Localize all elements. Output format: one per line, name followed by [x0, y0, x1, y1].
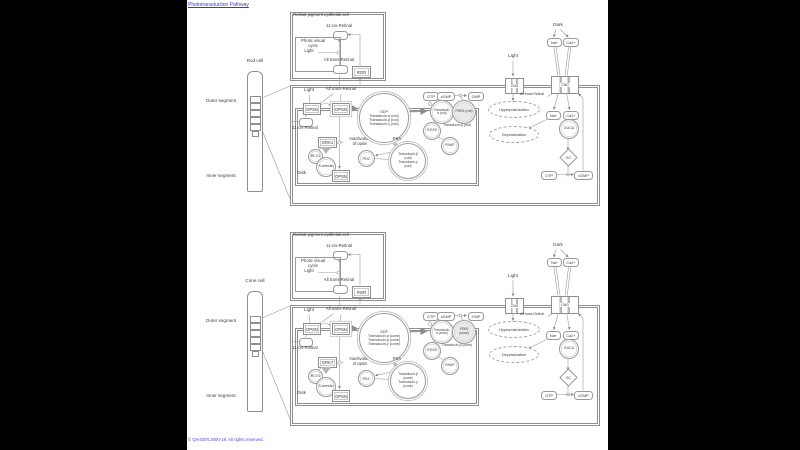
disk-lamella [250, 337, 261, 344]
transducin-betagamma-complex[interactable]: Transducin-β (cone) Transducin-γ (cone) [390, 363, 426, 399]
outer-segment-label: Outer segment [201, 98, 241, 103]
outer-segment-label: Outer segment [201, 318, 241, 323]
rpe-cell-title: Retinal pigment epithelial cell [293, 233, 365, 238]
alltrans-retinal-label: All trans-Retinal [319, 307, 363, 312]
na-ion-extracellular: Na+ [547, 38, 562, 47]
gmp-metabolite: GMP [468, 92, 484, 101]
connecting-cilium [252, 351, 259, 357]
light-label: Light [299, 87, 319, 92]
na-ion-intracellular: Na+ [546, 331, 561, 340]
dark-label: Dark [548, 242, 568, 247]
disk-lamella [250, 344, 261, 351]
gene-box-opsn-phosphorylated[interactable]: OPSN [332, 170, 350, 182]
transducin-gamma-label: Transducin-γ (rod) [367, 122, 401, 126]
panel-cone: Cone cell Outer segment Inner segment Re… [187, 228, 607, 428]
gc-label: GC [566, 375, 571, 379]
copyright-text: © QIAGEN 2000-19. All rights reserved. [188, 437, 264, 442]
rod-panel-slot: Rod cell Outer segment Inner segment Ret… [187, 8, 607, 208]
gene-box-opsn[interactable]: OPSN [303, 323, 321, 335]
transducin-heterotrimer-complex[interactable]: GDP Transducin-α (cone) Transducin-β (co… [359, 313, 409, 363]
rpe-11cis-retinal-label: 11-cis-Retinal [315, 244, 363, 249]
depolarization-burst: Depolarization [489, 126, 539, 143]
gc-label: GC [566, 155, 571, 159]
protein-pde6[interactable]: PDE6 (cone) [452, 320, 476, 344]
cgmp-metabolite-2: cGMP [574, 391, 593, 400]
pka-label: PKA [388, 357, 406, 362]
ca-ion-extracellular: Ca2+ [563, 258, 579, 267]
cng-label: CNG [560, 83, 570, 87]
inner-segment-label: Inner segment [201, 393, 241, 398]
gene-box-opsn-activated[interactable]: OPSN [332, 103, 350, 115]
rpe-alltrans-retinal-label: All trans-Retinal [313, 58, 365, 63]
transducin-alpha-active-label: Transducin-α (rod) [433, 109, 451, 116]
light-label: Light [299, 307, 319, 312]
protein-transducin-alpha-active[interactable]: Transducin-α (cone) [430, 320, 454, 344]
transducin-alpha-active-label: Transducin-α (cone) [433, 329, 451, 336]
protein-transducin-alpha-active[interactable]: Transducin-α (rod) [430, 100, 454, 124]
alltrans-retinal-channel-label: All trans-Retinal [514, 93, 550, 97]
protein-r9ap[interactable]: R9AP [441, 137, 459, 155]
gene-box-opsn[interactable]: OPSN [303, 103, 321, 115]
protein-pdc[interactable]: PDC [358, 370, 375, 387]
disk-label: Disk [297, 170, 317, 175]
rpe-alltrans-retinal-metabolite [333, 285, 348, 294]
protein-r9ap[interactable]: R9AP [441, 357, 459, 375]
transducin-heterotrimer-complex[interactable]: GDP Transducin-α (rod) Transducin-β (rod… [359, 93, 409, 143]
disk-lamella [250, 330, 261, 337]
cone-panel-slot: Cone cell Outer segment Inner segment Re… [187, 228, 607, 428]
gtp-metabolite-2: GTP [541, 171, 557, 180]
rpe-alltrans-retinal-metabolite [333, 65, 348, 74]
cng-channel-right[interactable]: CNG [551, 76, 579, 94]
transducin-gamma-label: Transducin-γ (cone) [395, 381, 421, 389]
11cis-retinal-label: 11-cis-Retinal [286, 346, 324, 351]
protein-guca[interactable]: GUCA [559, 119, 579, 139]
11cis-retinal-label: 11-cis-Retinal [286, 126, 324, 131]
gmp-metabolite: GMP [468, 312, 484, 321]
gene-box-opsn-activated[interactable]: OPSN [332, 323, 350, 335]
disk-lamella [250, 110, 261, 117]
connecting-cilium [252, 131, 259, 137]
disk-lamella [250, 316, 261, 323]
cell-type-label: Cone cell [233, 278, 277, 283]
transducin-betagamma-complex[interactable]: Transducin-β (rod) Transducin-γ (rod) [390, 143, 426, 179]
pde6-label: PDE6 (cone) [456, 328, 473, 335]
disk-lamella [250, 96, 261, 103]
transducin-gamma-label: Transducin-γ (rod) [395, 161, 421, 169]
rpe-light-label: Light [301, 269, 317, 274]
inner-segment-label: Inner segment [201, 173, 241, 178]
protein-pdc[interactable]: PDC [358, 150, 375, 167]
rpe-cell-title: Retinal pigment epithelial cell [293, 13, 365, 18]
na-ion-extracellular: Na+ [547, 258, 562, 267]
cng-channel-right[interactable]: CNG [551, 296, 579, 314]
rpe-alltrans-retinal-label: All trans-Retinal [313, 278, 365, 283]
transducin-beta5-label: Transducin-β (rod) [439, 124, 475, 128]
rpe-11cis-retinal-label: 11-cis-Retinal [315, 24, 363, 29]
gtp-metabolite-2: GTP [541, 391, 557, 400]
gene-box-opsn-phosphorylated[interactable]: OPSN [332, 390, 350, 402]
gene-box-rgr[interactable]: RGR [352, 66, 371, 78]
pde6-label: PDE6 (rod) [456, 110, 473, 114]
pathway-canvas: Phototransduction Pathway [187, 0, 608, 450]
rpe-light-label: Light [301, 49, 317, 54]
hyperpolarization-burst: Hyperpolarization [488, 101, 540, 118]
disk-lamella [250, 323, 261, 330]
ca-ion-extracellular: Ca2+ [563, 38, 579, 47]
panel-rod: Rod cell Outer segment Inner segment Ret… [187, 8, 607, 208]
cng-label: CNG [510, 304, 520, 308]
na-ion-intracellular: Na+ [546, 111, 561, 120]
transducin-beta5-label: Transducin-β (cone) [439, 344, 475, 348]
gene-box-rgr[interactable]: RGR [352, 286, 371, 298]
alltrans-retinal-channel-label: All trans-Retinal [514, 313, 550, 317]
light-label-channel: Light [503, 53, 523, 58]
dark-label: Dark [548, 22, 568, 27]
cgmp-metabolite-2: cGMP [574, 171, 593, 180]
alltrans-retinal-label: All trans-Retinal [319, 87, 363, 92]
screenshot-root: Phototransduction Pathway [0, 0, 800, 450]
disk-lamella [250, 124, 261, 131]
cell-type-label: Rod cell [233, 58, 277, 63]
disk-lamella [250, 117, 261, 124]
depolarization-burst: Depolarization [489, 346, 539, 363]
hyperpolarization-burst: Hyperpolarization [488, 321, 540, 338]
cng-label: CNG [510, 84, 520, 88]
cng-label: CNG [560, 303, 570, 307]
disk-label: Disk [297, 390, 317, 395]
protein-pde6[interactable]: PDE6 (rod) [452, 100, 476, 124]
disk-lamella [250, 103, 261, 110]
protein-guca[interactable]: GUCA [559, 339, 579, 359]
light-label-channel: Light [503, 273, 523, 278]
transducin-gamma-label: Transducin-γ (cone) [367, 342, 401, 346]
pka-label: PKA [388, 137, 406, 142]
